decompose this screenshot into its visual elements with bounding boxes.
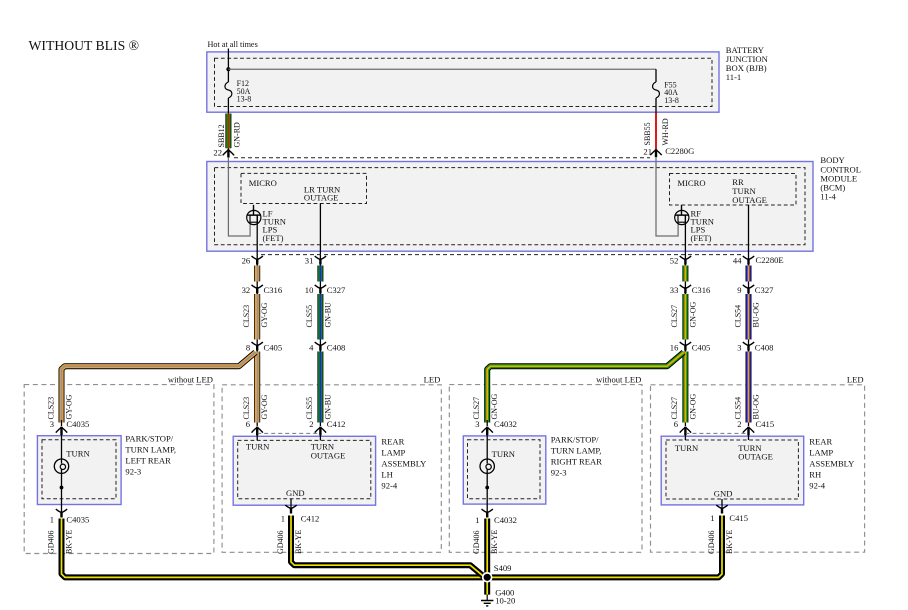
svg-text:8: 8: [246, 343, 250, 353]
svg-text:without LED: without LED: [168, 375, 213, 385]
svg-text:C327: C327: [755, 285, 774, 295]
svg-text:LAMP: LAMP: [381, 447, 405, 457]
svg-text:GN-RD: GN-RD: [233, 122, 242, 148]
svg-text:10: 10: [305, 285, 314, 295]
svg-text:without LED: without LED: [596, 375, 641, 385]
svg-text:GD406: GD406: [472, 530, 481, 554]
svg-text:BK-YE: BK-YE: [725, 529, 734, 554]
svg-text:SBB12: SBB12: [217, 124, 226, 147]
svg-text:MICRO: MICRO: [677, 178, 705, 188]
svg-text:CLS23: CLS23: [242, 305, 251, 328]
svg-text:6: 6: [246, 419, 251, 429]
svg-text:33: 33: [670, 285, 679, 295]
svg-text:2: 2: [309, 419, 313, 429]
svg-text:(FET): (FET): [263, 233, 284, 243]
svg-text:13-8: 13-8: [237, 94, 252, 103]
svg-text:CLS55: CLS55: [305, 305, 314, 328]
svg-text:C316: C316: [264, 285, 283, 295]
svg-text:C327: C327: [327, 285, 346, 295]
svg-text:WITHOUT BLIS ®: WITHOUT BLIS ®: [29, 38, 140, 53]
svg-text:ASSEMBLY: ASSEMBLY: [809, 459, 854, 469]
svg-text:C4032: C4032: [494, 419, 517, 429]
svg-text:BK-YE: BK-YE: [294, 529, 303, 554]
svg-text:BK-YE: BK-YE: [490, 529, 499, 554]
svg-text:44: 44: [733, 256, 742, 266]
svg-text:92-4: 92-4: [809, 481, 825, 491]
svg-text:PARK/STOP/: PARK/STOP/: [125, 433, 173, 443]
svg-text:3: 3: [50, 419, 54, 429]
svg-text:C412: C412: [327, 419, 346, 429]
svg-text:C412: C412: [301, 514, 320, 524]
svg-text:6: 6: [674, 419, 679, 429]
svg-text:MICRO: MICRO: [249, 178, 277, 188]
svg-text:22: 22: [213, 148, 222, 158]
svg-text:TURN: TURN: [675, 443, 699, 453]
svg-text:GND: GND: [286, 488, 305, 498]
svg-text:2: 2: [737, 419, 741, 429]
svg-text:92-3: 92-3: [125, 466, 141, 476]
svg-text:RH: RH: [809, 470, 821, 480]
svg-text:1: 1: [475, 515, 479, 525]
svg-text:1: 1: [710, 513, 714, 523]
svg-text:3: 3: [475, 419, 479, 429]
svg-text:OUTAGE: OUTAGE: [304, 193, 339, 203]
svg-text:BK-YE: BK-YE: [64, 529, 73, 554]
svg-text:SBB55: SBB55: [643, 122, 652, 145]
svg-text:CLS55: CLS55: [305, 397, 314, 420]
svg-text:BU-OG: BU-OG: [751, 394, 760, 420]
svg-text:OUTAGE: OUTAGE: [738, 452, 773, 462]
svg-text:GD406: GD406: [707, 530, 716, 554]
svg-text:31: 31: [305, 256, 314, 266]
svg-text:32: 32: [242, 285, 251, 295]
svg-text:C316: C316: [692, 285, 711, 295]
svg-text:GND: GND: [714, 488, 733, 498]
svg-text:C415: C415: [756, 419, 775, 429]
svg-text:3: 3: [737, 343, 741, 353]
svg-text:C4032: C4032: [494, 515, 517, 525]
svg-text:S409: S409: [494, 563, 512, 573]
svg-text:LH: LH: [381, 469, 392, 479]
svg-text:C408: C408: [327, 343, 346, 353]
svg-text:9: 9: [737, 285, 741, 295]
svg-text:16: 16: [670, 343, 679, 353]
svg-text:1: 1: [281, 514, 285, 524]
svg-text:C2280E: C2280E: [756, 255, 784, 265]
svg-text:10-20: 10-20: [495, 596, 515, 606]
svg-text:LED: LED: [424, 375, 441, 385]
svg-text:GD406: GD406: [276, 530, 285, 554]
svg-text:C405: C405: [692, 343, 711, 353]
svg-text:OUTAGE: OUTAGE: [732, 195, 767, 205]
svg-text:CLS27: CLS27: [670, 397, 679, 420]
svg-text:92-4: 92-4: [381, 480, 397, 490]
svg-text:LEFT REAR: LEFT REAR: [125, 455, 171, 465]
svg-text:REAR: REAR: [809, 437, 832, 447]
svg-text:LED: LED: [847, 375, 864, 385]
svg-text:C408: C408: [755, 343, 774, 353]
svg-text:TURN: TURN: [246, 442, 270, 452]
svg-text:TURN: TURN: [492, 449, 516, 459]
svg-text:ASSEMBLY: ASSEMBLY: [381, 458, 426, 468]
svg-text:92-3: 92-3: [551, 468, 567, 478]
svg-text:C4035: C4035: [66, 419, 89, 429]
svg-text:Hot at all times: Hot at all times: [208, 40, 258, 49]
svg-text:C4035: C4035: [66, 515, 89, 525]
svg-text:GY-OG: GY-OG: [260, 394, 269, 419]
svg-text:1: 1: [50, 515, 54, 525]
svg-text:TURN LAMP,: TURN LAMP,: [125, 444, 176, 454]
svg-text:13-8: 13-8: [664, 96, 679, 105]
svg-text:(FET): (FET): [691, 233, 712, 243]
svg-text:CLS27: CLS27: [472, 397, 481, 420]
svg-text:PARK/STOP/: PARK/STOP/: [551, 435, 599, 445]
svg-text:TURN LAMP,: TURN LAMP,: [551, 446, 602, 456]
svg-text:BU-OG: BU-OG: [751, 302, 760, 328]
svg-text:RIGHT REAR: RIGHT REAR: [551, 457, 602, 467]
svg-text:GN-BU: GN-BU: [323, 302, 332, 328]
svg-text:11-1: 11-1: [726, 72, 741, 82]
svg-text:11-4: 11-4: [820, 191, 836, 201]
svg-text:OUTAGE: OUTAGE: [311, 450, 346, 460]
svg-text:TURN: TURN: [66, 449, 90, 459]
svg-text:CLS27: CLS27: [670, 305, 679, 328]
svg-text:WH-RD: WH-RD: [661, 118, 670, 145]
svg-text:REAR: REAR: [381, 436, 404, 446]
svg-text:GN-OG: GN-OG: [490, 394, 499, 420]
svg-text:GN-OG: GN-OG: [688, 394, 697, 420]
svg-text:52: 52: [670, 256, 679, 266]
svg-text:CLS54: CLS54: [733, 305, 742, 328]
svg-text:C405: C405: [264, 343, 283, 353]
svg-text:C2280G: C2280G: [665, 146, 694, 156]
svg-text:GY-OG: GY-OG: [64, 394, 73, 419]
svg-text:GN-OG: GN-OG: [688, 302, 697, 328]
svg-text:C415: C415: [729, 513, 748, 523]
svg-text:GD406: GD406: [46, 530, 55, 554]
svg-text:4: 4: [309, 343, 314, 353]
svg-text:CLS54: CLS54: [733, 397, 742, 420]
svg-text:CLS23: CLS23: [46, 397, 55, 420]
svg-text:CLS23: CLS23: [242, 397, 251, 420]
svg-text:GY-OG: GY-OG: [260, 302, 269, 327]
svg-text:LAMP: LAMP: [809, 448, 833, 458]
svg-text:GN-BU: GN-BU: [323, 394, 332, 420]
svg-text:26: 26: [242, 256, 251, 266]
